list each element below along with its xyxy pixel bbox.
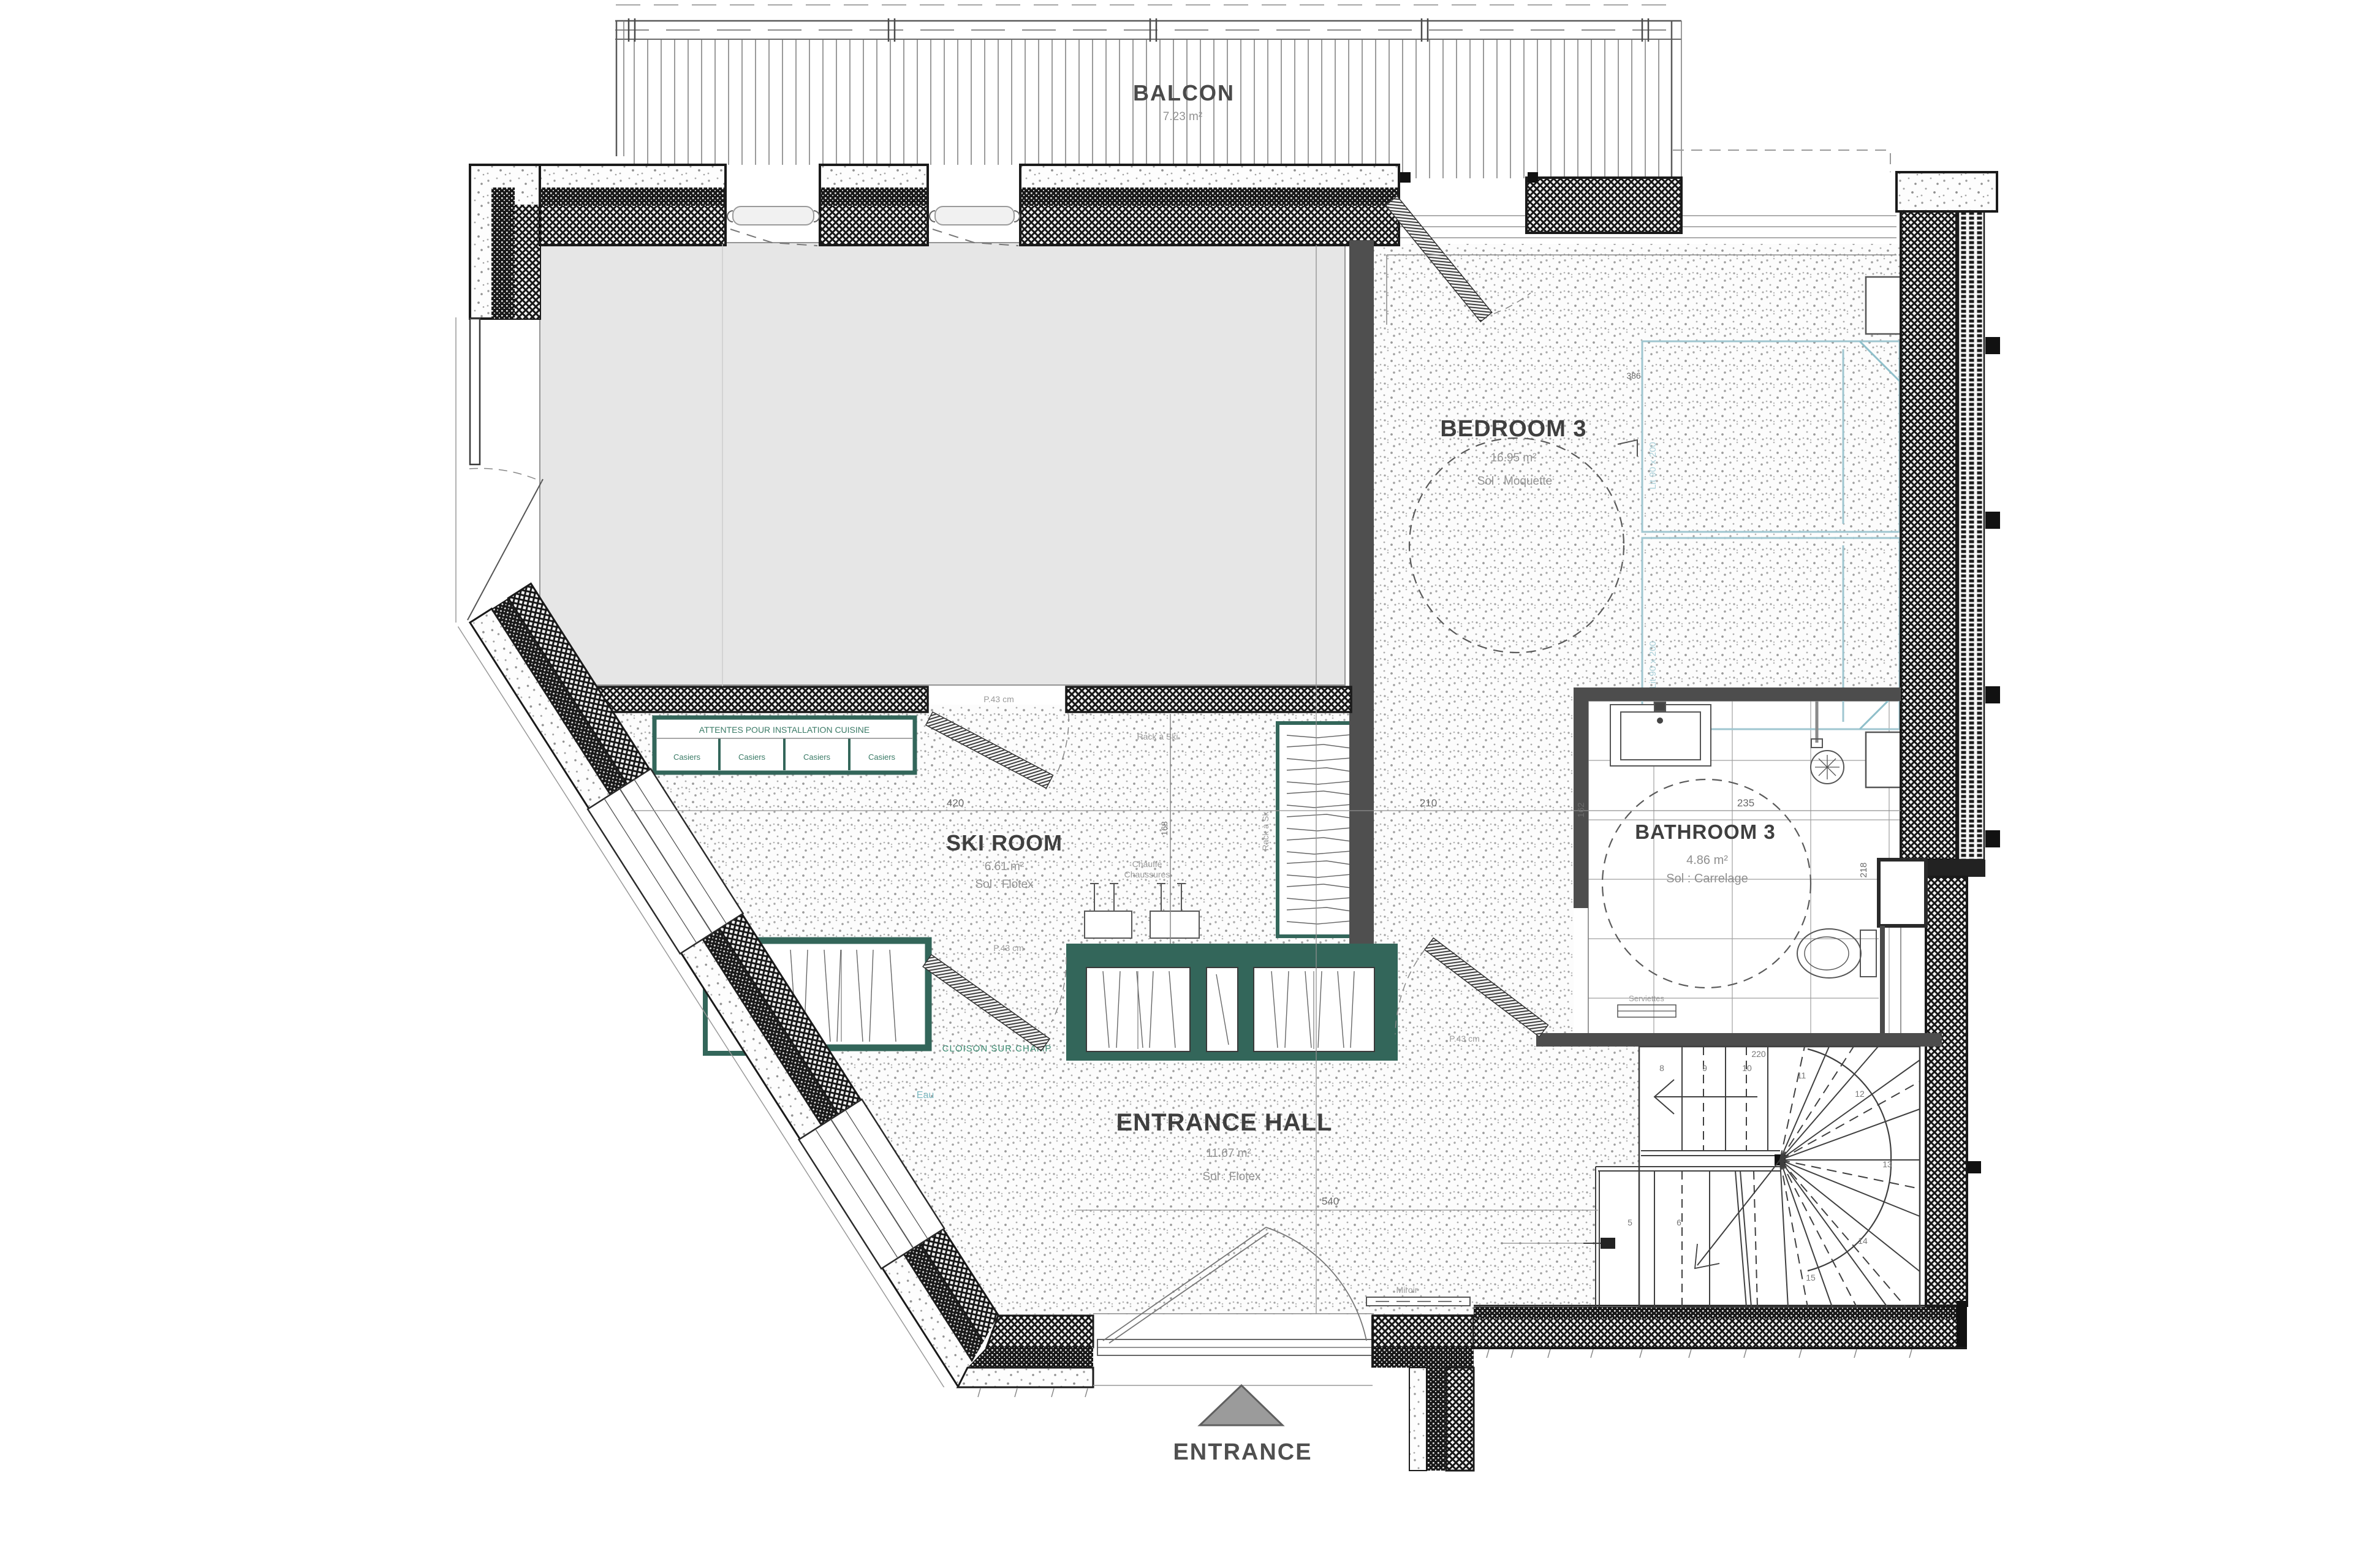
svg-text:13: 13 [1882,1159,1892,1169]
svg-text:11: 11 [1797,1070,1806,1080]
svg-text:BALCON: BALCON [1133,80,1235,105]
svg-text:Rack à Ski: Rack à Ski [1137,732,1178,741]
svg-text:Casiers: Casiers [803,752,831,762]
svg-text:10: 10 [1742,1063,1752,1073]
svg-text:5: 5 [1627,1218,1632,1227]
svg-text:15: 15 [1806,1273,1816,1282]
svg-text:P.43 cm: P.43 cm [983,694,1014,704]
svg-text:SKI ROOM: SKI ROOM [946,830,1063,855]
svg-text:11.67 m²: 11.67 m² [1206,1147,1251,1160]
svg-text:540: 540 [1322,1195,1339,1207]
svg-text:6.61 m²: 6.61 m² [985,860,1024,873]
svg-text:220: 220 [1751,1049,1766,1059]
svg-text:Lit 90 x 200: Lit 90 x 200 [1648,442,1658,490]
svg-text:Eau: Eau [917,1090,934,1100]
svg-text:Miroir: Miroir [1396,1285,1418,1295]
svg-text:Chaussures: Chaussures [1124,869,1170,879]
svg-text:4.86 m²: 4.86 m² [1686,854,1728,867]
svg-text:9: 9 [1702,1063,1707,1073]
svg-text:210: 210 [1420,797,1437,809]
svg-text:BATHROOM 3: BATHROOM 3 [1635,820,1775,843]
svg-text:Rack à Ski: Rack à Ski [1260,810,1270,851]
svg-text:16.95 m²: 16.95 m² [1491,452,1537,464]
svg-text:12: 12 [1855,1089,1865,1099]
svg-text:Casiers: Casiers [673,752,701,762]
svg-text:P.43 cm: P.43 cm [993,943,1024,953]
svg-text:Casiers: Casiers [738,752,766,762]
svg-text:168: 168 [1159,821,1169,836]
svg-text:P.43 cm: P.43 cm [1449,1034,1480,1043]
svg-text:218: 218 [1859,862,1869,877]
svg-text:Sol : Carrelage: Sol : Carrelage [1666,872,1748,885]
svg-text:162: 162 [1576,802,1586,817]
svg-text:Casiers: Casiers [868,752,896,762]
svg-text:Sol : Moquette: Sol : Moquette [1477,475,1553,488]
svg-text:Lit 90 x 200: Lit 90 x 200 [1648,641,1658,689]
svg-text:14: 14 [1858,1236,1868,1246]
svg-text:8: 8 [1659,1063,1664,1073]
svg-text:420: 420 [947,797,964,809]
svg-text:ENTRANCE: ENTRANCE [1173,1439,1312,1465]
svg-text:6: 6 [1677,1218,1681,1227]
svg-text:386: 386 [1626,371,1641,381]
svg-text:ENTRANCE HALL: ENTRANCE HALL [1116,1109,1333,1136]
svg-text:Chauffe: Chauffe [1132,859,1162,869]
svg-text:ATTENTES POUR INSTALLATION CUI: ATTENTES POUR INSTALLATION CUISINE [699,725,870,735]
svg-text:235: 235 [1737,797,1754,809]
svg-text:Serviettes: Serviettes [1629,994,1664,1003]
svg-text:Sol : Flotex: Sol : Flotex [975,878,1034,891]
svg-text:7.23 m²: 7.23 m² [1163,110,1202,123]
svg-text:Sol : Flotex: Sol : Flotex [1202,1170,1261,1183]
svg-text:BEDROOM 3: BEDROOM 3 [1440,416,1586,442]
